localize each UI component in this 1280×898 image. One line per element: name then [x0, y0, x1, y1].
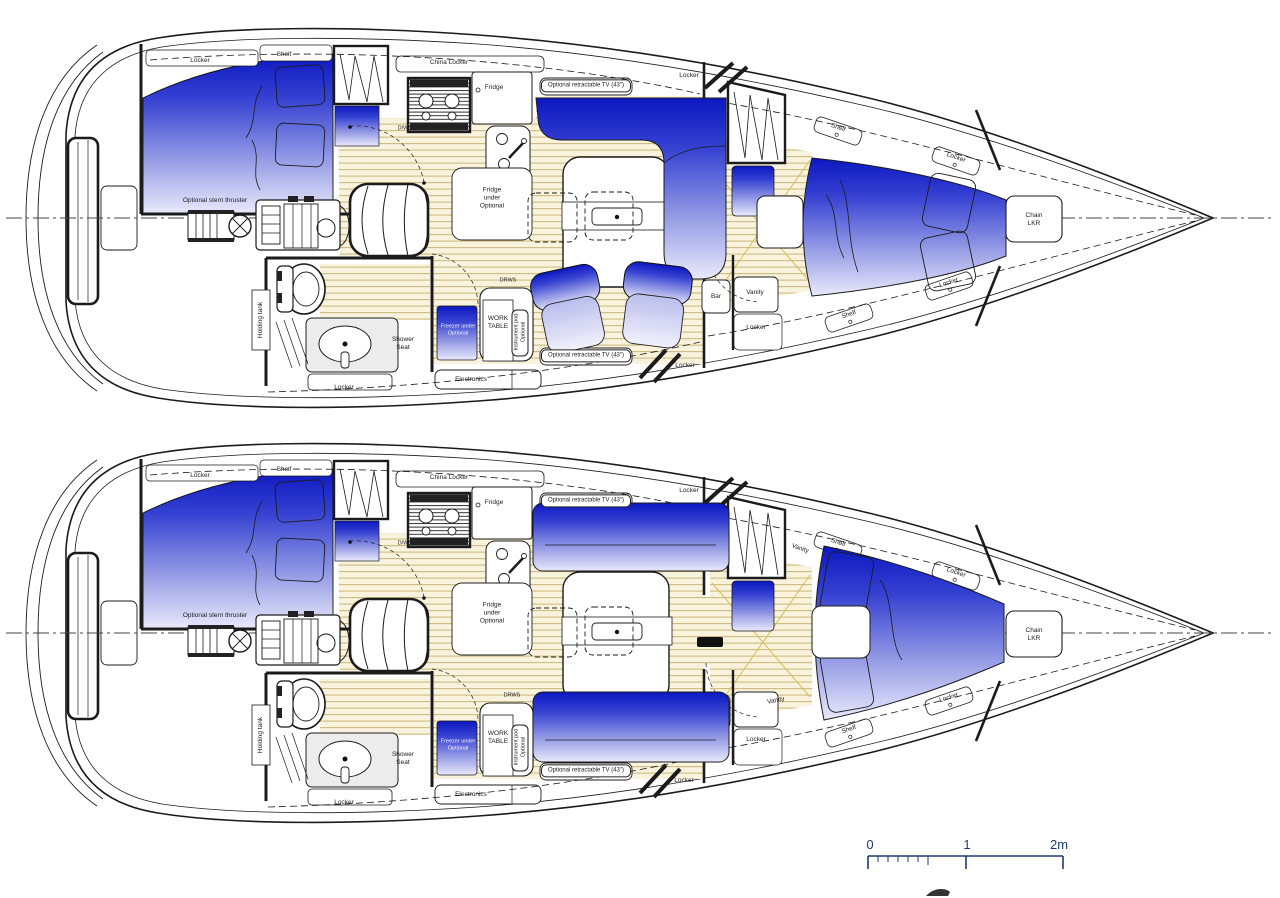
b1-electronics-label: Electronics [455, 376, 487, 384]
b1-drws-label: DRWS [500, 278, 517, 285]
b1-tv-port-label: Optional retractable TV (43") [541, 79, 631, 92]
scale-tick-2m: 2m [1050, 837, 1068, 852]
scale-bar [868, 856, 1063, 869]
b1-aft-locker-label: Locker [190, 57, 210, 65]
cropped-mark [926, 889, 950, 896]
b1-bar-label: Bar [711, 293, 721, 301]
b1-aft-shelf-label: Shelf [277, 51, 292, 59]
b1-tv-stbd-label: Optional retractable TV (43") [541, 349, 631, 362]
b2-dwd-label: D/WD [398, 541, 413, 548]
b2-freezer-label: Freezer under Optional [441, 738, 476, 751]
b1-mid-locker-label: Locker [675, 362, 695, 370]
b1-vanity-label: Vanity [746, 289, 764, 297]
b2-fridge-under-label: Fridge under Optional [480, 601, 504, 624]
b1-fridge-label: Fridge [485, 84, 503, 92]
b1-vanity-locker-label: Locker [746, 324, 766, 332]
b2-saloon-locker-label: Locker [679, 487, 699, 495]
b1-holding-tank-label: Holding tank [257, 302, 265, 338]
b1-shower-seat-label: Shower Seat [392, 336, 414, 352]
b2-shower-seat-label: Shower Seat [392, 751, 414, 767]
b2-work-table-label: WORK TABLE [488, 730, 508, 746]
b1-heads-locker-label: Locker [334, 384, 354, 392]
b1-fridge-under-label: Fridge under Optional [480, 186, 504, 209]
b2-electronics-label: Electronics [455, 791, 487, 799]
b2-aft-locker-label: Locker [190, 472, 210, 480]
b1-instrument-pod-label: Instrument pod Optional [513, 314, 526, 351]
b2-holding-tank-label: Holding tank [257, 717, 265, 753]
b2-tv-port-label: Optional retractable TV (43") [541, 494, 631, 507]
b1-stern-thruster-label: Optional stern thruster [183, 197, 247, 205]
boat-plan-bottom [6, 444, 1274, 823]
b1-chain-locker-label: Chain LKR [1026, 212, 1043, 228]
b1-work-table-label: WORK TABLE [488, 315, 508, 331]
b1-dwd-label: D/WD [398, 126, 413, 133]
b2-stern-thruster-label: Optional stern thruster [183, 612, 247, 620]
b2-china-locker-label: China Locker [430, 474, 468, 482]
boat-plan-top [6, 29, 1274, 408]
scale-tick-0: 0 [866, 837, 873, 852]
b1-china-locker-label: China Locker [430, 59, 468, 67]
boat-plan-drawing [0, 0, 1280, 898]
b2-tv-stbd-label: Optional retractable TV (43") [541, 764, 631, 777]
b2-chain-locker-label: Chain LKR [1026, 627, 1043, 643]
scale-tick-1: 1 [963, 837, 970, 852]
b2-heads-locker-label: Locker [334, 799, 354, 807]
yacht-layout-diagram: Locker Shelf China Locker Fridge Optiona… [0, 0, 1280, 898]
b2-aft-shelf-label: Shelf [277, 466, 292, 474]
b1-saloon-locker-label: Locker [679, 72, 699, 80]
b2-instrument-pod-label: Instrument pod Optional [513, 729, 526, 766]
b2-mid-locker-label: Locker [674, 777, 694, 785]
b2-fridge-label: Fridge [485, 499, 503, 507]
b2-vanity-locker-label: Locker [746, 736, 766, 744]
b2-drws-label: DRWS [504, 693, 521, 700]
b1-freezer-label: Freezer under Optional [441, 323, 476, 336]
